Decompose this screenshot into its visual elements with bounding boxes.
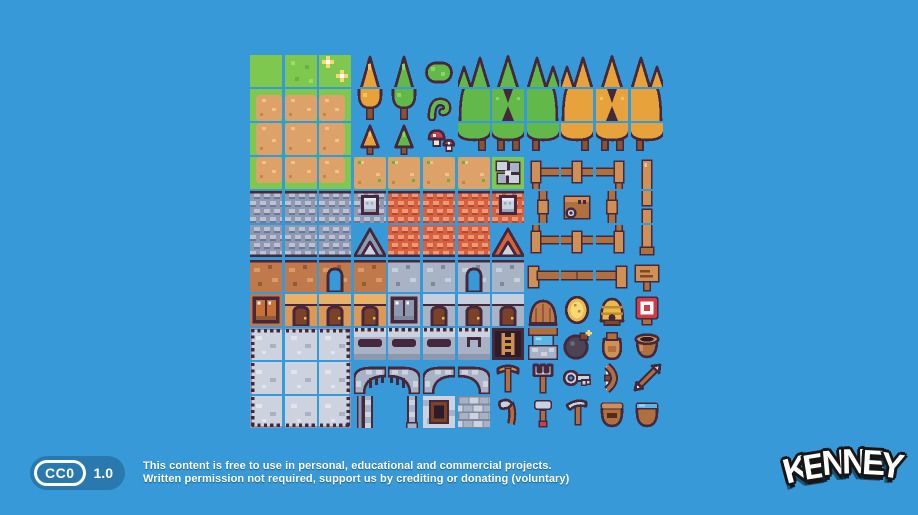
tile-wall-orange-door [354,294,386,326]
tile-grp-g-bm [492,123,524,155]
tile-roof-red [423,191,455,223]
tile-tree-green-top [388,55,420,87]
tile-pitchfork [527,362,559,394]
tile-roof-gray-dormer [354,191,386,223]
tile-fence-v [527,191,559,223]
tile-tree-orange-small [354,123,386,155]
tile-bow [596,362,628,394]
tile-grp-g-tl [458,55,490,87]
tile-dirt-plain [388,157,420,189]
tile-beehive [596,294,628,326]
tile-battlement [388,328,420,360]
tile-roof-red-bot [388,225,420,257]
tile-dirt-plain [354,157,386,189]
tile-dirt-l [250,123,282,155]
tile-grp-g-br [527,123,559,155]
tile-roof-red [388,191,420,223]
tile-stone-bricks [458,396,490,428]
tile-dirt-bl [250,157,282,189]
tile-floor-bl [250,396,282,428]
tile-well-bot [527,328,559,360]
license-version: 1.0 [94,465,113,481]
tile-roof-gray-bot [250,225,282,257]
tile-battlement [423,328,455,360]
tile-sign [631,260,663,292]
tile-roof-red-bot [458,225,490,257]
tile-fence-tl [527,157,559,189]
tile-grp-o-br [631,123,663,155]
tile-grass-detail [285,55,317,87]
tile-dirt-tr [319,89,351,121]
license-text-line2: Written permission not required, support… [143,473,569,486]
tile-dirt-plain [458,157,490,189]
license-text-line1: This content is free to use in personal,… [143,460,569,473]
tile-dirt-br [319,157,351,189]
tile-arch-r [458,362,490,394]
tile-battlement-s [458,328,490,360]
tile-grp-o-ml [561,89,593,121]
tile-gate-l [354,362,386,394]
license-text: This content is free to use in personal,… [143,460,569,486]
tile-floor-br [319,396,351,428]
tile-wall-gray-door [458,294,490,326]
tile-target [631,294,663,326]
tile-wall-gray-door [492,294,524,326]
tile-fence-bl [527,225,559,257]
tile-bomb [561,328,593,360]
tile-ladder [492,328,524,360]
tilesheet-grid [250,55,663,428]
tile-grp-o-bl [561,123,593,155]
tile-mushrooms [423,123,455,155]
tile-fence-v-top [631,157,663,189]
tile-log-r [596,260,628,292]
tile-gable-red [492,225,524,257]
tile-wall-brown-arch [319,260,351,292]
tile-col-r [388,396,420,428]
tile-roof-gray [319,191,351,223]
tile-floor-r [319,362,351,394]
tile-arch-l [423,362,455,394]
promo-canvas: CC0 1.0 This content is free to use in p… [0,0,918,515]
tile-axe [492,396,524,428]
tile-grp-g-mr [527,89,559,121]
tile-coin [561,294,593,326]
tile-wall-gray-door [423,294,455,326]
tile-fence-br [596,225,628,257]
tile-pickaxe [492,362,524,394]
tile-gable-gray [354,225,386,257]
tile-wall-orange-door [319,294,351,326]
tile-roof-red-bot [423,225,455,257]
tile-stones-grass [492,157,524,189]
tile-floor-c [285,362,317,394]
tile-wall-orange-door [285,294,317,326]
tile-fence-v-mid [631,191,663,223]
kenney-logo: KENNEY [765,442,917,490]
tile-hammer [527,396,559,428]
tile-fence-v [596,191,628,223]
tile-wall-brown [250,260,282,292]
tile-fence-tt [561,157,593,189]
tile-grass [250,55,282,87]
tile-basket [596,396,628,428]
tile-battlement [354,328,386,360]
tile-bush-green [423,55,455,87]
tile-grp-o-mr [631,89,663,121]
tile-scythe [561,396,593,428]
tile-log-l [527,260,559,292]
tile-fence-tb [561,225,593,257]
tile-gate-r [388,362,420,394]
tile-dirt-t [285,89,317,121]
tile-wall-gray-arch [458,260,490,292]
tile-wall-gray [423,260,455,292]
tile-dirt-plain [423,157,455,189]
tile-dirt-tl [250,89,282,121]
tile-wall-brown [354,260,386,292]
tile-window-stone [423,396,455,428]
tile-window-gray [388,294,420,326]
tile-arrow [631,362,663,394]
tile-roof-gray-bot [319,225,351,257]
tile-floor-tr [319,328,351,360]
tile-grp-g-tm [492,55,524,87]
cc0-license-badge: CC0 1.0 [30,456,125,490]
tile-bucket-water [631,396,663,428]
tile-grp-g-tr [527,55,559,87]
tile-grp-o-tm [596,55,628,87]
tile-tree-green-small [388,123,420,155]
tile-dirt-b [285,157,317,189]
tile-wall-gray [492,260,524,292]
tile-key [561,362,593,394]
tile-floor-b [285,396,317,428]
tile-grp-g-ml [458,89,490,121]
tile-well-top [527,294,559,326]
tile-roof-red-dormer [492,191,524,223]
tile-grp-g-bl [458,123,490,155]
license-footer: CC0 1.0 This content is free to use in p… [30,456,569,490]
tile-log-m [561,260,593,292]
tile-fence-v-bot [631,225,663,257]
cc0-label: CC0 [34,460,86,486]
tile-sprout [423,89,455,121]
tile-grp-o-tl [561,55,593,87]
tile-roof-gray [250,191,282,223]
tile-dirt-r [319,123,351,155]
tile-grp-o-tr [631,55,663,87]
tile-wall-brown [285,260,317,292]
tile-grp-o-mm [596,89,628,121]
tile-wall-gray [388,260,420,292]
tile-roof-gray [285,191,317,223]
tile-sack [596,328,628,360]
tile-grass-sparkle [319,55,351,87]
tile-roof-red [458,191,490,223]
tile-floor-t [285,328,317,360]
tile-dirt-c [285,123,317,155]
tile-tree-orange-bot [354,89,386,121]
tile-window-brown [250,294,282,326]
tile-floor-tl [250,328,282,360]
tile-col-l [354,396,386,428]
tile-fence-tr [596,157,628,189]
tile-grp-o-bm [596,123,628,155]
tile-pot [631,328,663,360]
tile-tree-orange-top [354,55,386,87]
tile-grp-g-mm [492,89,524,121]
tile-roof-gray-bot [285,225,317,257]
tile-chest [561,191,593,223]
tile-tree-green-bot [388,89,420,121]
tile-floor-l [250,362,282,394]
